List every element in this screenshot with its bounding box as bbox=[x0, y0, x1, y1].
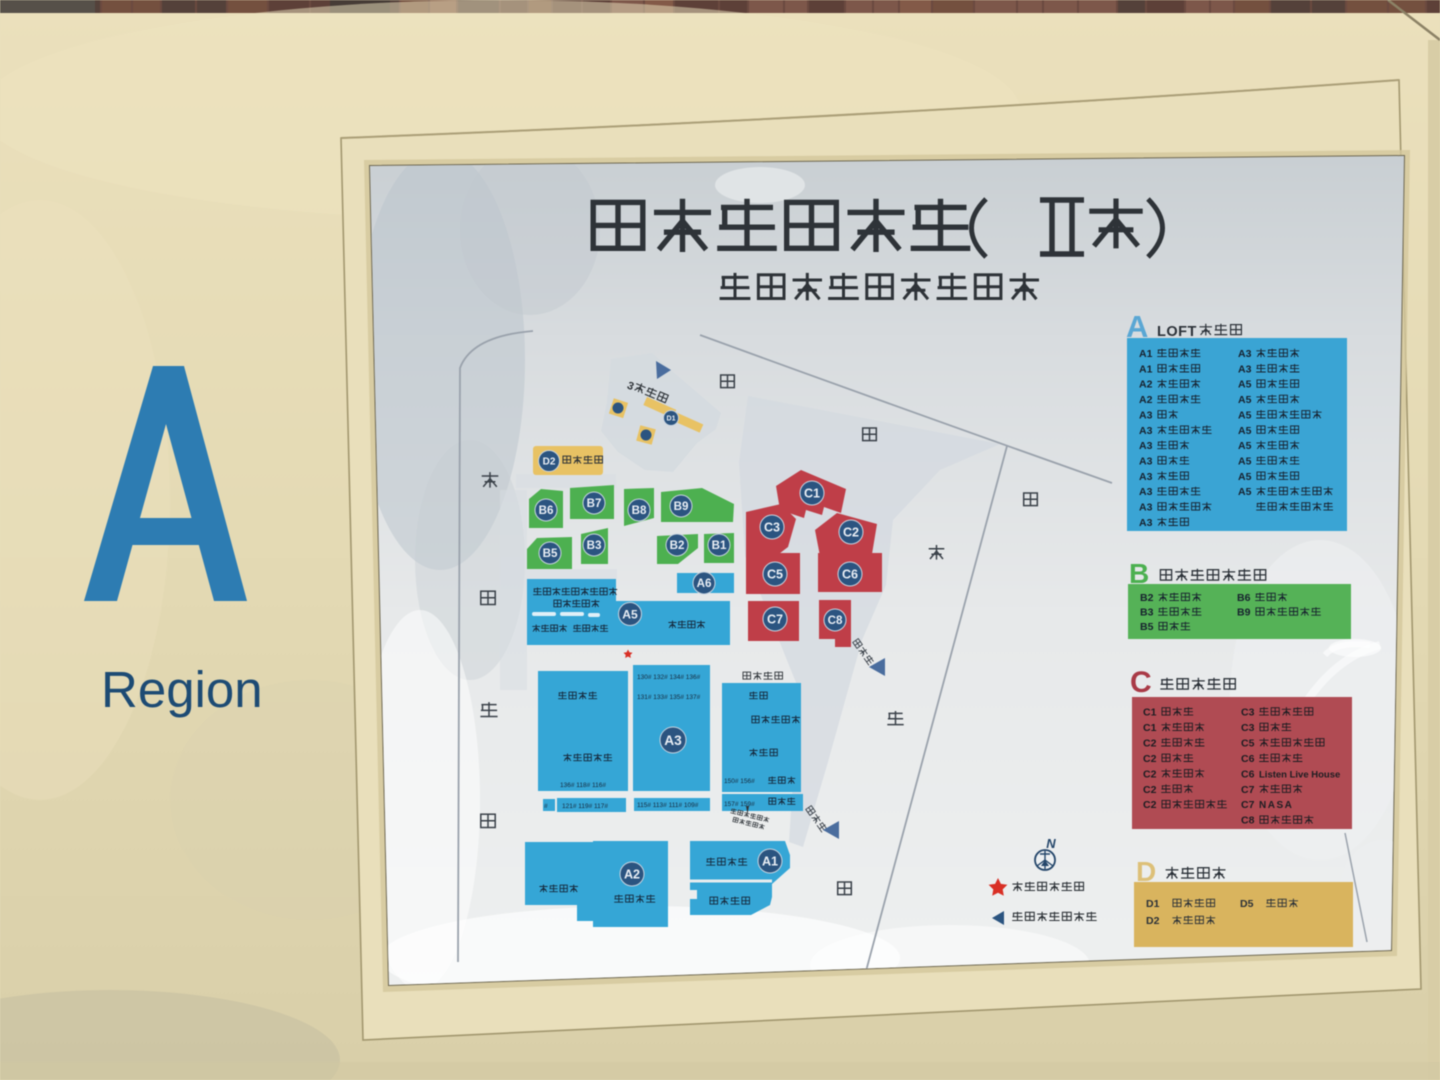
svg-text:C2: C2 bbox=[1143, 784, 1157, 796]
svg-text:C6: C6 bbox=[1241, 768, 1255, 780]
svg-text:B3: B3 bbox=[1140, 607, 1154, 619]
svg-text:LOFT: LOFT bbox=[1157, 324, 1197, 340]
svg-text:A3: A3 bbox=[1139, 471, 1153, 483]
svg-text:B1: B1 bbox=[712, 539, 727, 552]
svg-text:A2: A2 bbox=[1139, 379, 1153, 391]
svg-text:A5: A5 bbox=[1238, 394, 1252, 406]
svg-text:B2: B2 bbox=[670, 539, 685, 552]
svg-text:136# 118# 116#: 136# 118# 116# bbox=[560, 782, 606, 789]
svg-text:B9: B9 bbox=[674, 500, 689, 513]
svg-text:B8: B8 bbox=[632, 504, 647, 517]
svg-text:A3: A3 bbox=[1139, 502, 1153, 514]
svg-text:A3: A3 bbox=[1238, 348, 1252, 360]
svg-text:A5: A5 bbox=[1238, 486, 1252, 498]
svg-text:C2: C2 bbox=[1143, 768, 1157, 780]
svg-text:A3: A3 bbox=[1139, 440, 1153, 452]
svg-text:C1: C1 bbox=[1143, 722, 1157, 734]
svg-text:C3: C3 bbox=[1241, 707, 1255, 719]
svg-text:D1: D1 bbox=[1146, 898, 1160, 910]
svg-text:C5: C5 bbox=[767, 568, 783, 582]
svg-text:131# 133# 135# 137#: 131# 133# 135# 137# bbox=[637, 694, 701, 701]
svg-text:C2: C2 bbox=[1143, 799, 1157, 811]
svg-text:A3: A3 bbox=[1139, 425, 1153, 437]
svg-text:B5: B5 bbox=[1140, 621, 1154, 633]
svg-text:B6: B6 bbox=[539, 504, 554, 517]
svg-text:N: N bbox=[1046, 836, 1056, 851]
svg-text:A5: A5 bbox=[1238, 379, 1252, 391]
svg-text:D1: D1 bbox=[667, 416, 676, 423]
svg-text:C6: C6 bbox=[842, 568, 858, 582]
svg-text:121# 119# 117#: 121# 119# 117# bbox=[562, 803, 608, 810]
svg-text:A5: A5 bbox=[1238, 409, 1252, 421]
svg-text:C2: C2 bbox=[843, 526, 859, 540]
svg-text:B2: B2 bbox=[1140, 592, 1154, 604]
svg-text:B3: B3 bbox=[587, 539, 602, 552]
svg-text:B5: B5 bbox=[543, 547, 558, 560]
svg-text:C3: C3 bbox=[1241, 722, 1255, 734]
svg-text:A5: A5 bbox=[1238, 471, 1252, 483]
svg-text:A2: A2 bbox=[1139, 394, 1153, 406]
svg-text:Region: Region bbox=[101, 661, 263, 718]
svg-text:C2: C2 bbox=[1143, 737, 1157, 749]
svg-text:C6: C6 bbox=[1241, 753, 1255, 765]
svg-text:A6: A6 bbox=[697, 577, 712, 590]
svg-text:130# 132# 134# 136#: 130# 132# 134# 136# bbox=[637, 674, 701, 681]
svg-text:A3: A3 bbox=[1139, 517, 1153, 529]
svg-text:C: C bbox=[1130, 666, 1152, 699]
svg-text:A1: A1 bbox=[1139, 363, 1153, 375]
svg-text:A5: A5 bbox=[1238, 425, 1252, 437]
svg-text:A3: A3 bbox=[1139, 409, 1153, 421]
svg-text:A1: A1 bbox=[1139, 348, 1153, 360]
svg-text:A3: A3 bbox=[1139, 486, 1153, 498]
svg-text:C7: C7 bbox=[1241, 784, 1255, 796]
svg-text:C2: C2 bbox=[1143, 753, 1157, 765]
svg-text:115# 113# 111# 109#: 115# 113# 111# 109# bbox=[637, 802, 699, 809]
svg-text:D2: D2 bbox=[543, 457, 556, 468]
svg-text:C8: C8 bbox=[828, 614, 843, 627]
svg-text:C5: C5 bbox=[1241, 737, 1255, 749]
svg-text:A3: A3 bbox=[1238, 363, 1252, 375]
svg-text:Listen Live House: Listen Live House bbox=[1259, 769, 1340, 780]
svg-text:D5: D5 bbox=[1240, 898, 1254, 910]
svg-text:A1: A1 bbox=[762, 855, 778, 869]
svg-text:A3: A3 bbox=[1139, 455, 1153, 467]
svg-text:A3: A3 bbox=[664, 733, 682, 748]
svg-text:A5: A5 bbox=[1238, 440, 1252, 452]
svg-text:#: # bbox=[544, 803, 548, 810]
svg-text:A5: A5 bbox=[622, 607, 638, 621]
svg-text:B9: B9 bbox=[1237, 607, 1251, 619]
svg-text:B7: B7 bbox=[587, 497, 602, 510]
svg-text:A2: A2 bbox=[624, 868, 640, 882]
svg-text:NASA: NASA bbox=[1259, 800, 1293, 811]
svg-text:D2: D2 bbox=[1146, 915, 1160, 927]
svg-text:C1: C1 bbox=[804, 487, 820, 501]
svg-text:A5: A5 bbox=[1238, 455, 1252, 467]
svg-text:C7: C7 bbox=[767, 613, 783, 627]
svg-text:150# 156#: 150# 156# bbox=[724, 778, 755, 785]
svg-text:C3: C3 bbox=[764, 521, 780, 535]
svg-text:157# 159#: 157# 159# bbox=[724, 801, 755, 808]
svg-text:B6: B6 bbox=[1237, 592, 1251, 604]
svg-text:C1: C1 bbox=[1143, 707, 1157, 719]
svg-text:C7: C7 bbox=[1241, 799, 1255, 811]
svg-text:C8: C8 bbox=[1241, 815, 1255, 827]
